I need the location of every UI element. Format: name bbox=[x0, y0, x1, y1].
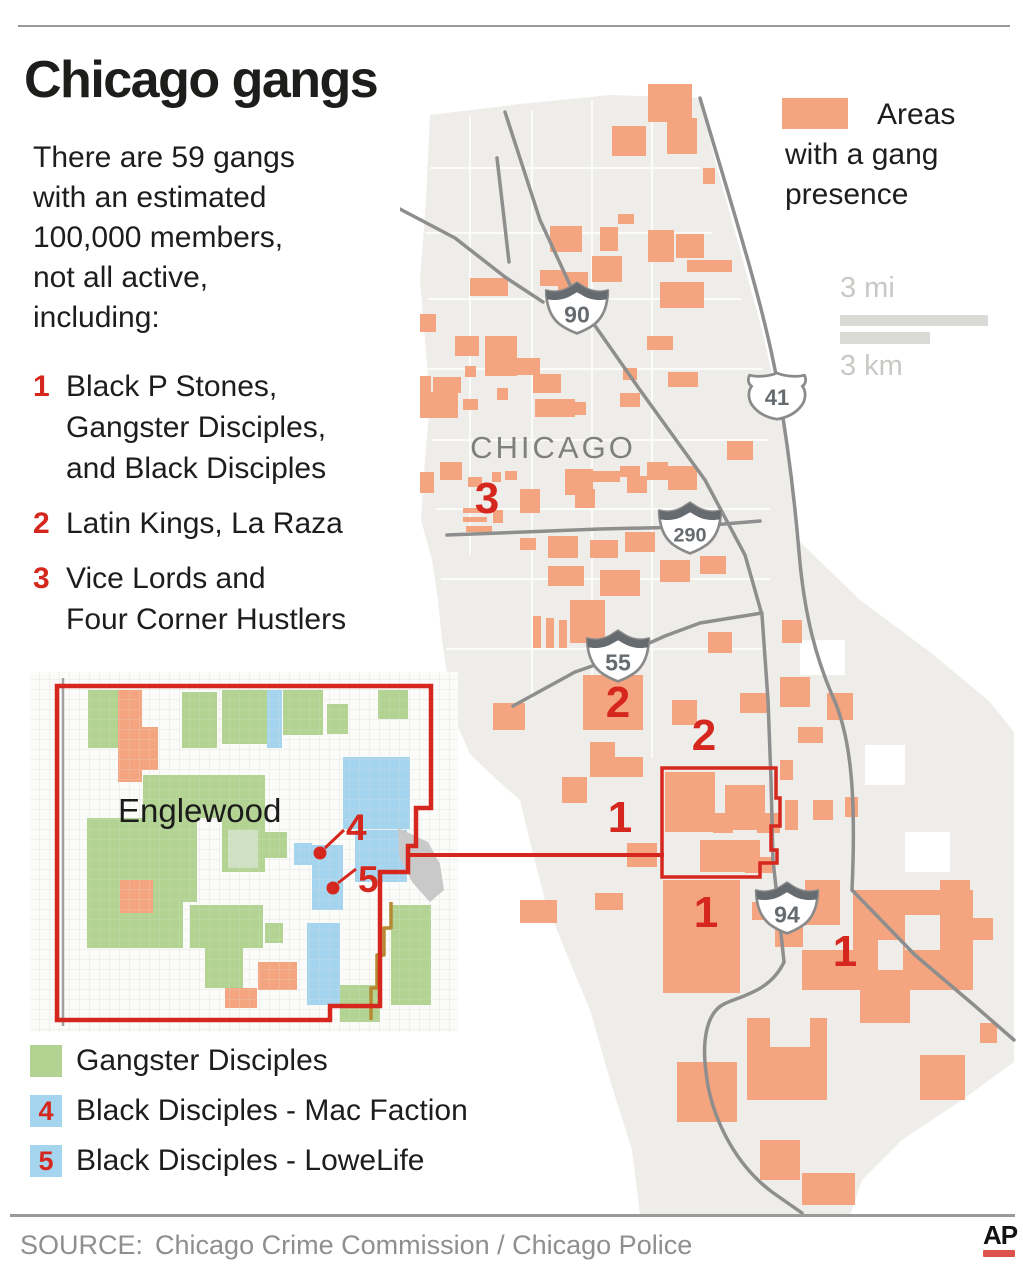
chicago-label: CHICAGO bbox=[470, 430, 636, 465]
page-title: Chicago gangs bbox=[24, 50, 377, 110]
area-number-3: 3 bbox=[475, 474, 499, 523]
area-number-1c: 1 bbox=[833, 927, 857, 976]
area-number-1b: 1 bbox=[694, 888, 718, 937]
gang-list-label: Latin Kings, La Raza bbox=[66, 503, 393, 544]
bottom-rule bbox=[10, 1214, 1015, 1217]
gang-list: 1 Black P Stones, Gangster Disciples, an… bbox=[33, 366, 393, 654]
legend-number: 5 bbox=[38, 1146, 53, 1177]
gang-list-label: Vice Lords and Four Corner Hustlers bbox=[66, 558, 393, 640]
ap-logo-text: AP bbox=[983, 1222, 1017, 1248]
intro-text: There are 59 gangs with an estimated 100… bbox=[33, 138, 393, 338]
inset-legend: Gangster Disciples 4 Black Disciples - M… bbox=[30, 1044, 550, 1194]
svg-text:290: 290 bbox=[673, 524, 706, 546]
legend-label: Gangster Disciples bbox=[76, 1044, 328, 1078]
lowelife-swatch: 5 bbox=[30, 1145, 62, 1177]
svg-text:41: 41 bbox=[765, 385, 789, 410]
area-number-2a: 2 bbox=[606, 678, 630, 727]
englewood-inset: Englewood 4 5 bbox=[30, 672, 458, 1032]
svg-text:4: 4 bbox=[346, 807, 367, 848]
svg-text:94: 94 bbox=[774, 901, 800, 927]
gang-list-item-2: 2 Latin Kings, La Raza bbox=[33, 503, 393, 544]
legend-label: Black Disciples - Mac Faction bbox=[76, 1094, 468, 1128]
legend-row-gangster-disciples: Gangster Disciples bbox=[30, 1044, 550, 1078]
mac-faction-swatch: 4 bbox=[30, 1095, 62, 1127]
legend-label: Black Disciples - LoweLife bbox=[76, 1144, 424, 1178]
svg-text:90: 90 bbox=[564, 301, 590, 327]
gangster-disciples-swatch bbox=[30, 1045, 62, 1077]
svg-text:5: 5 bbox=[358, 859, 379, 900]
svg-text:55: 55 bbox=[605, 649, 631, 675]
area-number-2b: 2 bbox=[692, 711, 716, 760]
source-line: SOURCE:Chicago Crime Commission / Chicag… bbox=[20, 1230, 692, 1261]
source-text: Chicago Crime Commission / Chicago Polic… bbox=[155, 1230, 692, 1260]
ap-logo-red-mark bbox=[983, 1250, 1015, 1257]
legend-row-lowelife: 5 Black Disciples - LoweLife bbox=[30, 1144, 550, 1178]
legend-number: 4 bbox=[38, 1096, 53, 1127]
gang-list-number: 2 bbox=[33, 503, 66, 544]
gang-list-number: 3 bbox=[33, 558, 66, 640]
top-rule bbox=[18, 25, 1010, 27]
gang-list-label: Black P Stones, Gangster Disciples, and … bbox=[66, 366, 393, 489]
source-prefix: SOURCE: bbox=[20, 1230, 143, 1260]
englewood-label: Englewood bbox=[118, 792, 281, 829]
legend-row-mac-faction: 4 Black Disciples - Mac Faction bbox=[30, 1094, 550, 1128]
gang-list-item-3: 3 Vice Lords and Four Corner Hustlers bbox=[33, 558, 393, 640]
callout-connector-line bbox=[409, 853, 664, 857]
ap-logo: AP bbox=[983, 1222, 1017, 1257]
gang-list-item-1: 1 Black P Stones, Gangster Disciples, an… bbox=[33, 366, 393, 489]
area-number-1a: 1 bbox=[608, 793, 632, 842]
gang-list-number: 1 bbox=[33, 366, 66, 489]
